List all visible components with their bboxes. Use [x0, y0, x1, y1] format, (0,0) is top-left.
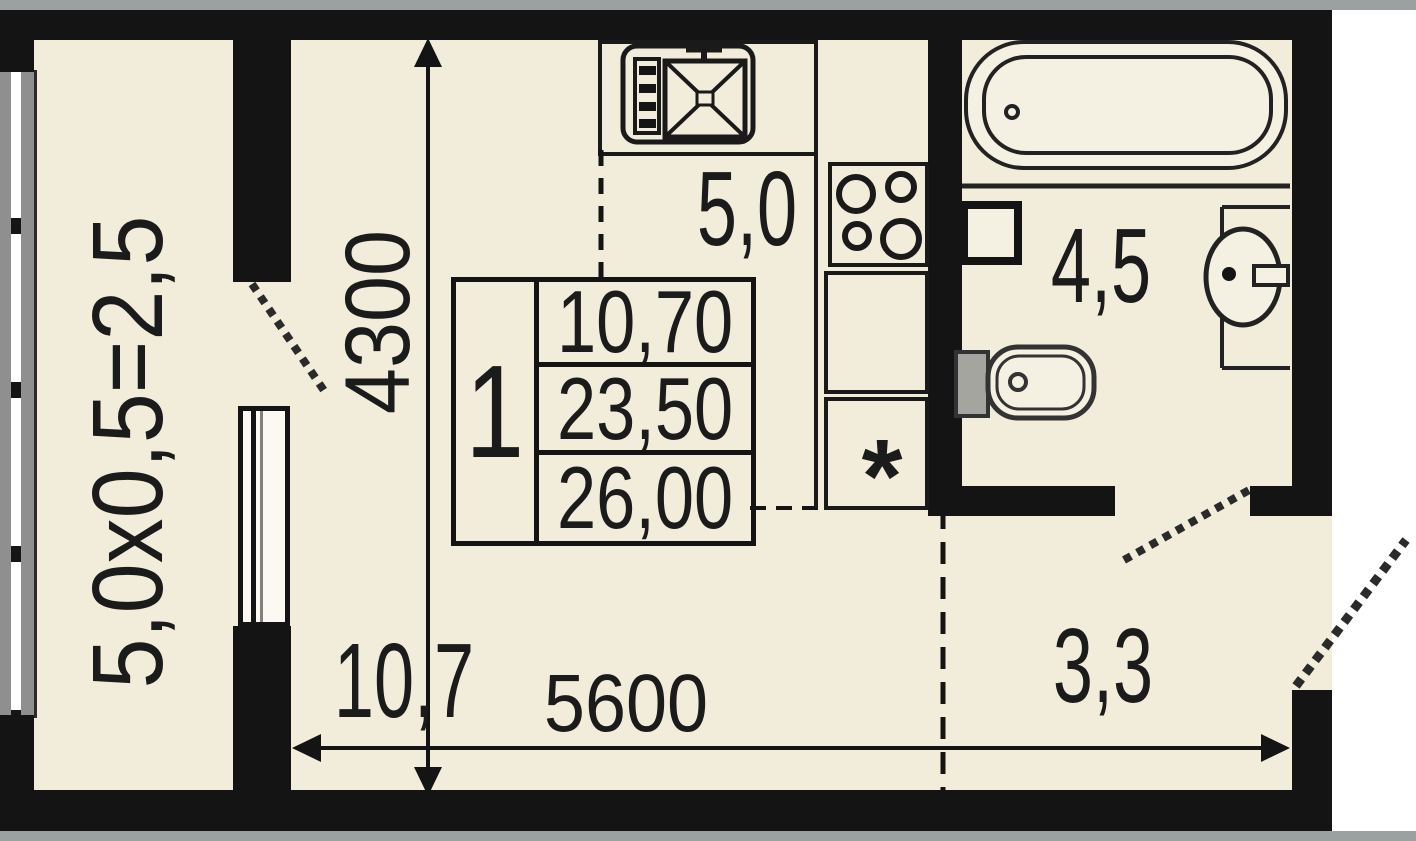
dim-arrow-right: [1261, 734, 1290, 762]
dim-arrow-left: [292, 734, 321, 762]
dimension-width-label: 5600: [544, 663, 708, 745]
floor-plan: 1 10,70 23,50 26,00: [0, 0, 1416, 841]
burner: [888, 174, 914, 200]
burner: [845, 224, 869, 248]
dim-arrow-down: [414, 767, 442, 796]
toilet-bolt: [947, 366, 955, 376]
toilet-bolt: [947, 391, 955, 401]
dim-arrow-up: [414, 38, 442, 67]
toilet-tank: [956, 352, 988, 416]
bathroom-door-swing: [1124, 489, 1251, 560]
drainer-bar: [639, 66, 656, 75]
washbasin-icon: [1206, 207, 1290, 368]
asterisk-mark: *: [862, 424, 903, 529]
room-area-label: 10,7: [334, 628, 474, 734]
kitchen-area-label: 5,0: [697, 156, 797, 262]
kitchen-sink-icon: [623, 42, 753, 142]
dimension-depth-label: 4300: [332, 230, 424, 414]
stove-icon: [839, 174, 919, 257]
balcony-door-swing: [252, 284, 327, 395]
drainer-bar: [639, 119, 656, 128]
hallway-area-label: 3,3: [1053, 613, 1153, 719]
burner: [883, 221, 919, 257]
bathtub-icon: [962, 42, 1290, 186]
toilet-bowl: [988, 347, 1094, 418]
washing-machine-icon: [964, 205, 1018, 261]
drainer-bar: [639, 102, 656, 111]
balcony-label: 5,0x0,5=2,5: [78, 216, 178, 689]
burner: [839, 177, 873, 211]
entrance-door-swing: [1296, 540, 1406, 686]
basin-drain-dot: [1222, 267, 1236, 281]
toilet-icon: [947, 347, 1094, 418]
basin-tap: [1254, 266, 1288, 285]
drainer-bar: [639, 84, 656, 93]
bathroom-area-label: 4,5: [1051, 213, 1151, 319]
basin-drain: [697, 92, 713, 105]
